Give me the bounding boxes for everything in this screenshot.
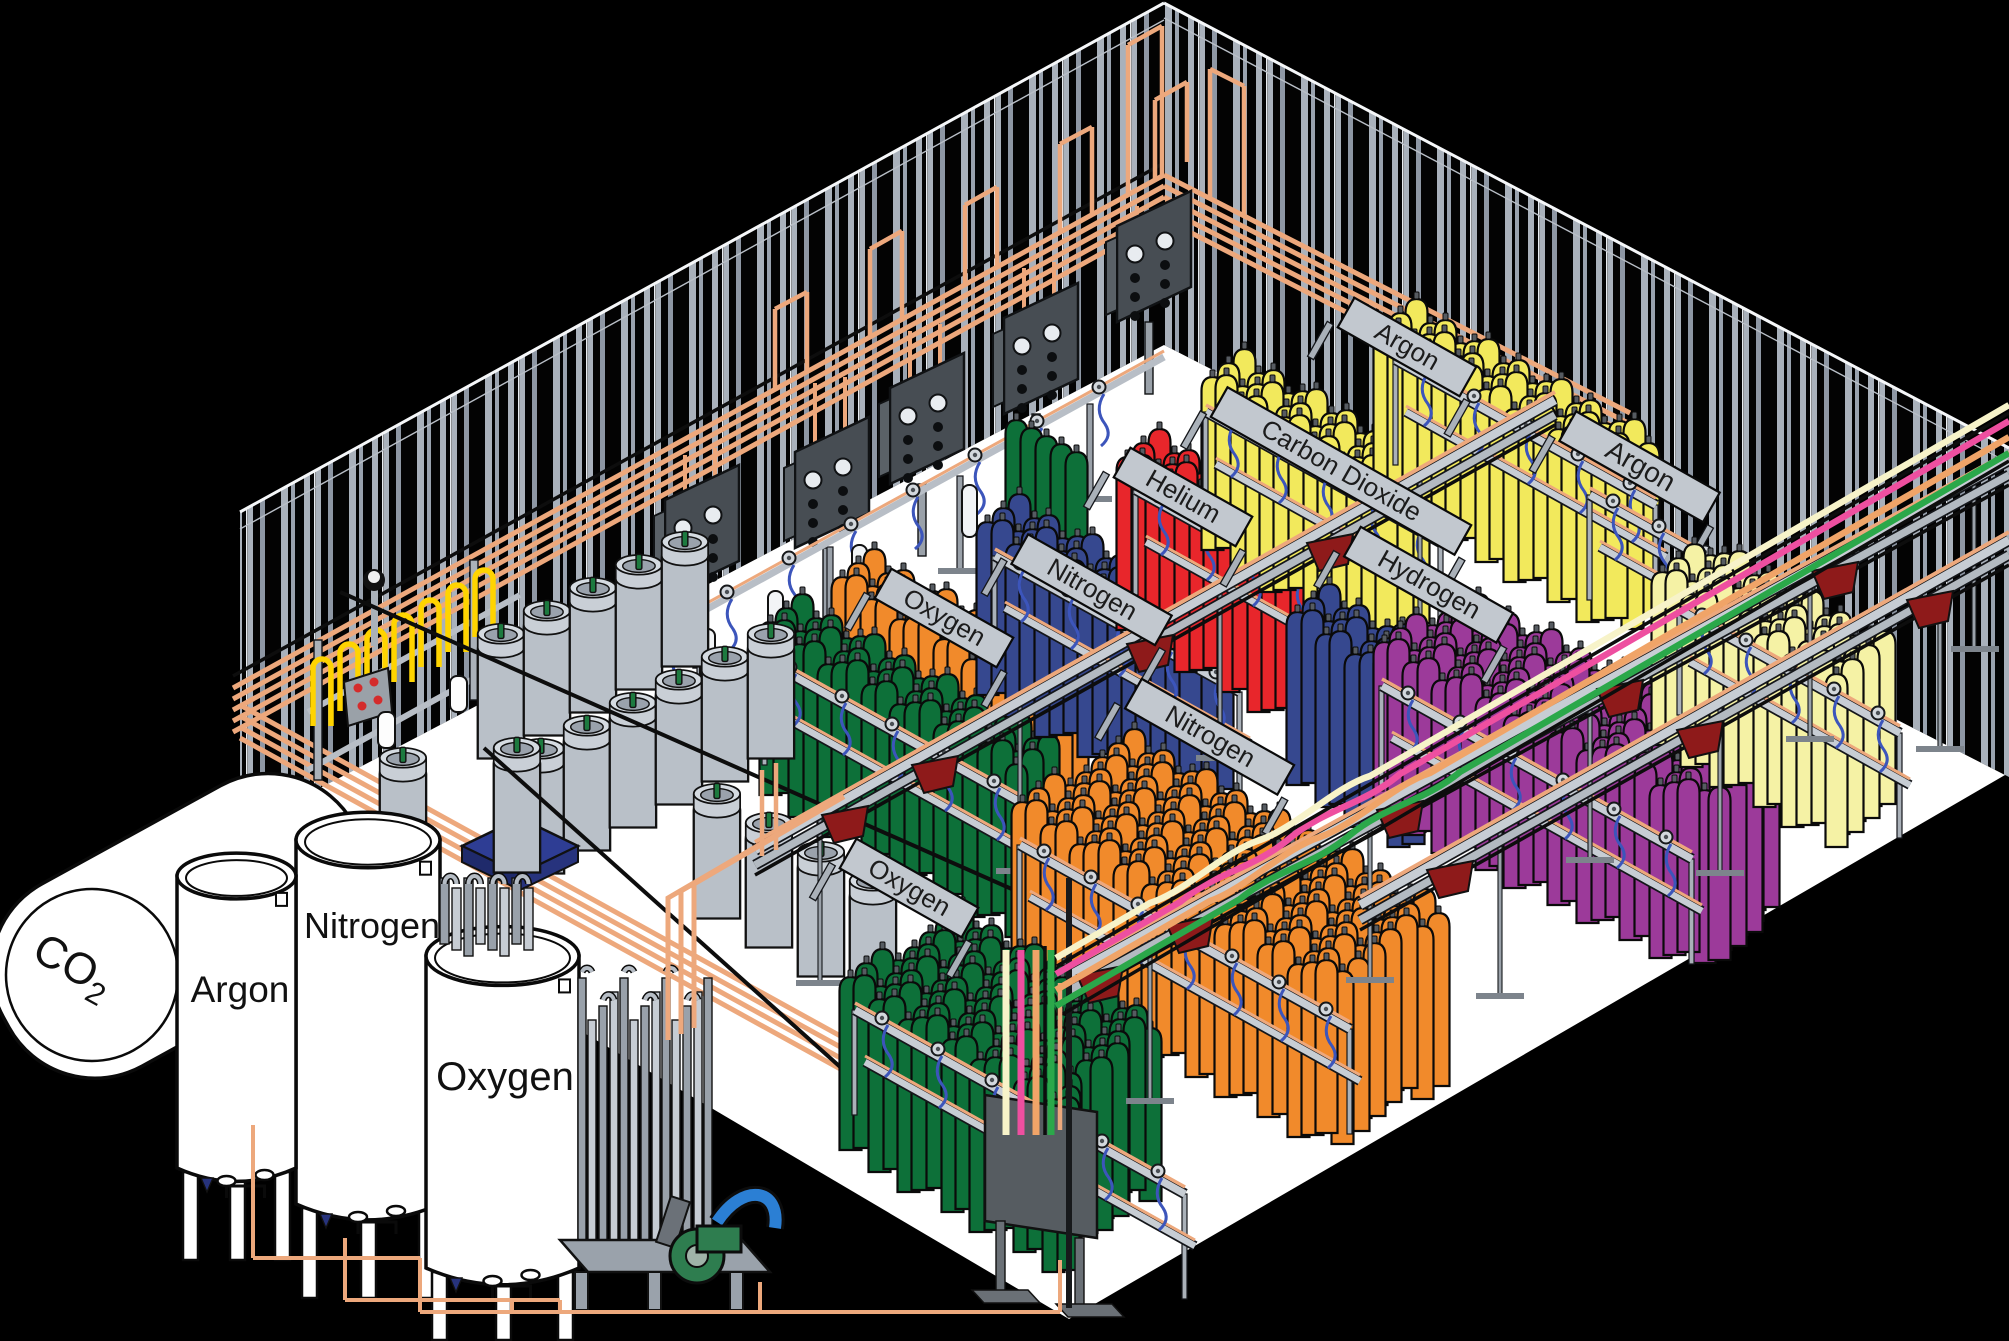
svg-text:Nitrogen: Nitrogen <box>304 905 440 946</box>
svg-text:Argon: Argon <box>191 969 290 1010</box>
svg-text:Oxygen: Oxygen <box>436 1055 574 1099</box>
